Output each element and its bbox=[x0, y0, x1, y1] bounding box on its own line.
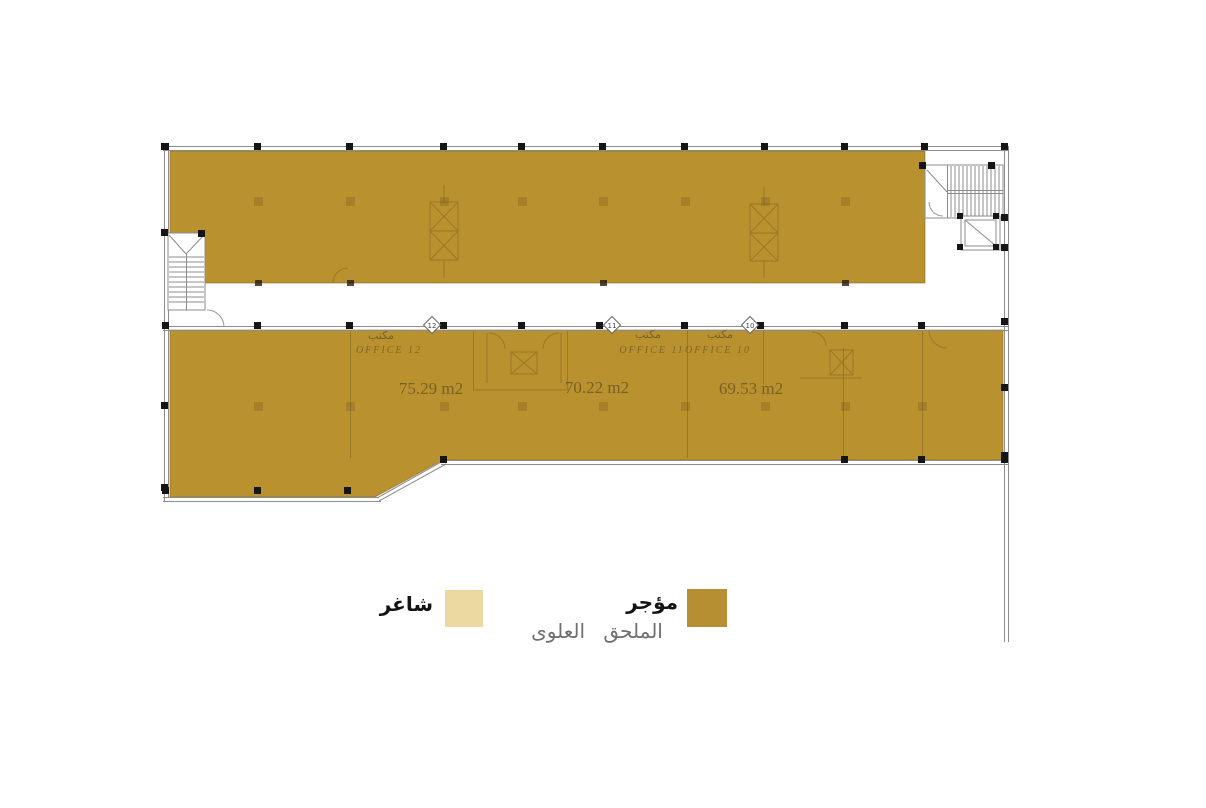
office-11-name-en: OFFICE 11 bbox=[617, 345, 687, 356]
unit-tag-11: 11 bbox=[608, 322, 617, 330]
unit-tag-12: 12 bbox=[428, 322, 437, 330]
office-12-name-en: OFFICE 12 bbox=[354, 345, 424, 356]
legend-vacant-label: شاغر bbox=[333, 592, 433, 616]
office-12-area: 75.29 m2 bbox=[396, 379, 466, 399]
rented-area-lower-block[interactable] bbox=[170, 330, 1003, 497]
office-11-area: 70.22 m2 bbox=[562, 378, 632, 398]
legend-vacant-swatch bbox=[445, 590, 483, 627]
stairs-right bbox=[925, 165, 1003, 218]
page-title: الملحق العلوى bbox=[497, 619, 697, 643]
floor-plan-page: 12 11 10 مكتب OFFICE 12 75.29 m2 مكتب OF… bbox=[0, 0, 1206, 808]
floor-plan-drawing: 12 11 10 bbox=[0, 0, 1206, 808]
office-11-name-ar: مكتب bbox=[618, 328, 678, 341]
office-10-name-en: OFFICE 10 bbox=[683, 345, 753, 356]
rented-area-upper-block[interactable] bbox=[170, 151, 925, 283]
office-12-name-ar: مكتب bbox=[351, 329, 411, 342]
office-10-area: 69.53 m2 bbox=[716, 379, 786, 399]
legend-rented-label: مؤجر bbox=[578, 590, 678, 614]
office-10-name-ar: مكتب bbox=[690, 328, 750, 341]
